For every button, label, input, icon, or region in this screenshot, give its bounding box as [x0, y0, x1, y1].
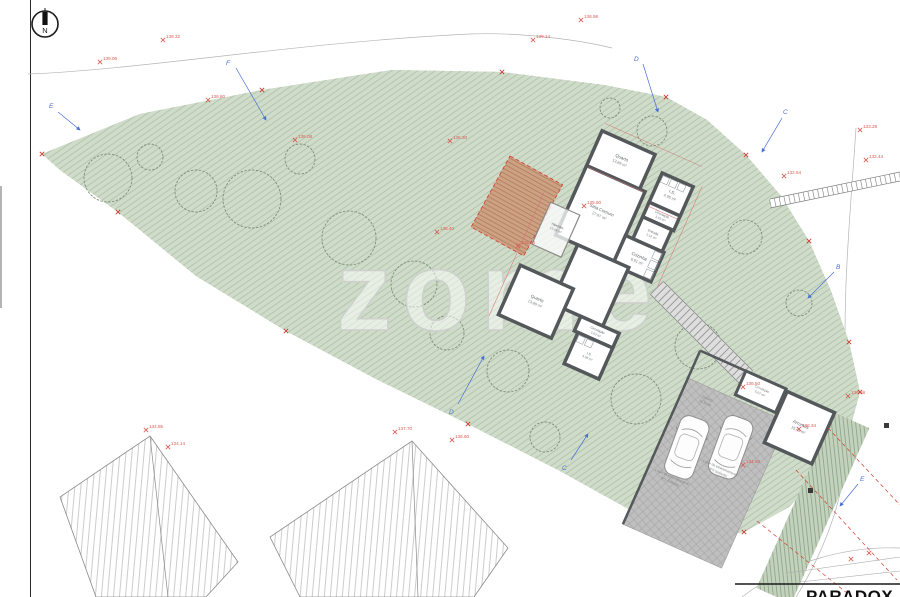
gate-post — [808, 488, 813, 493]
svg-text:C: C — [562, 465, 567, 472]
gate-post — [884, 423, 889, 428]
svg-text:139.06: 139.06 — [103, 56, 117, 61]
section-marker: E — [49, 103, 80, 130]
elevation-marker: 132.54 — [782, 170, 802, 178]
svg-text:135.60: 135.60 — [587, 200, 601, 205]
svg-text:136.30: 136.30 — [453, 135, 467, 140]
section-marker: C — [762, 109, 788, 152]
svg-text:136.50: 136.50 — [746, 381, 760, 386]
elevation-marker — [867, 551, 871, 555]
svg-text:132.44: 132.44 — [869, 154, 883, 159]
north-arrow: N — [32, 8, 58, 37]
svg-text:134.86: 134.86 — [149, 424, 163, 429]
neighbour-roofs — [60, 436, 508, 597]
svg-text:B: B — [836, 264, 841, 271]
svg-text:E: E — [860, 476, 865, 483]
elevation-marker: 139.32 — [161, 34, 181, 42]
elevation-marker: 132.44 — [864, 154, 884, 162]
svg-text:C: C — [783, 109, 788, 116]
svg-text:E: E — [49, 103, 54, 110]
elevation-marker: 139.06 — [98, 56, 118, 64]
elevation-marker: 136.60 — [450, 434, 470, 442]
svg-text:138.98: 138.98 — [584, 14, 598, 19]
svg-text:136.34: 136.34 — [802, 423, 816, 428]
elevation-marker: 139.14 — [531, 34, 551, 42]
site-plan-canvas: zome — [0, 0, 900, 597]
title-block-name: PARADOX — [806, 587, 893, 597]
elevation-marker: 133.28 — [858, 124, 878, 132]
svg-text:134.50: 134.50 — [746, 459, 760, 464]
svg-text:F: F — [226, 60, 231, 67]
elevation-marker: 134.14 — [166, 441, 186, 449]
elevation-marker: 137.70 — [393, 426, 413, 434]
svg-text:134.60: 134.60 — [521, 240, 535, 245]
svg-text:136.58: 136.58 — [851, 390, 865, 395]
svg-text:132.54: 132.54 — [787, 170, 801, 175]
svg-text:137.70: 137.70 — [398, 426, 412, 431]
north-label: N — [42, 26, 47, 35]
elevation-marker — [849, 557, 853, 561]
svg-text:136.60: 136.60 — [455, 434, 469, 439]
svg-text:139.32: 139.32 — [166, 34, 180, 39]
neighbor-roof — [270, 441, 508, 597]
svg-text:139.14: 139.14 — [536, 34, 550, 39]
svg-text:138.80: 138.80 — [211, 94, 225, 99]
svg-text:133.28: 133.28 — [863, 124, 877, 129]
elevation-marker: 138.98 — [579, 14, 599, 22]
svg-text:135.40: 135.40 — [440, 226, 454, 231]
svg-text:134.14: 134.14 — [171, 441, 185, 446]
access-stairs — [770, 172, 900, 208]
neighbor-roof — [60, 436, 238, 597]
svg-text:D: D — [634, 56, 639, 63]
svg-text:138.08: 138.08 — [298, 134, 312, 139]
north-needle — [42, 12, 47, 25]
title-block: PARADOX — [735, 557, 900, 597]
elevation-marker: 134.86 — [144, 424, 164, 432]
site-plan-drawing: zome — [0, 0, 900, 597]
svg-text:D: D — [449, 409, 454, 416]
